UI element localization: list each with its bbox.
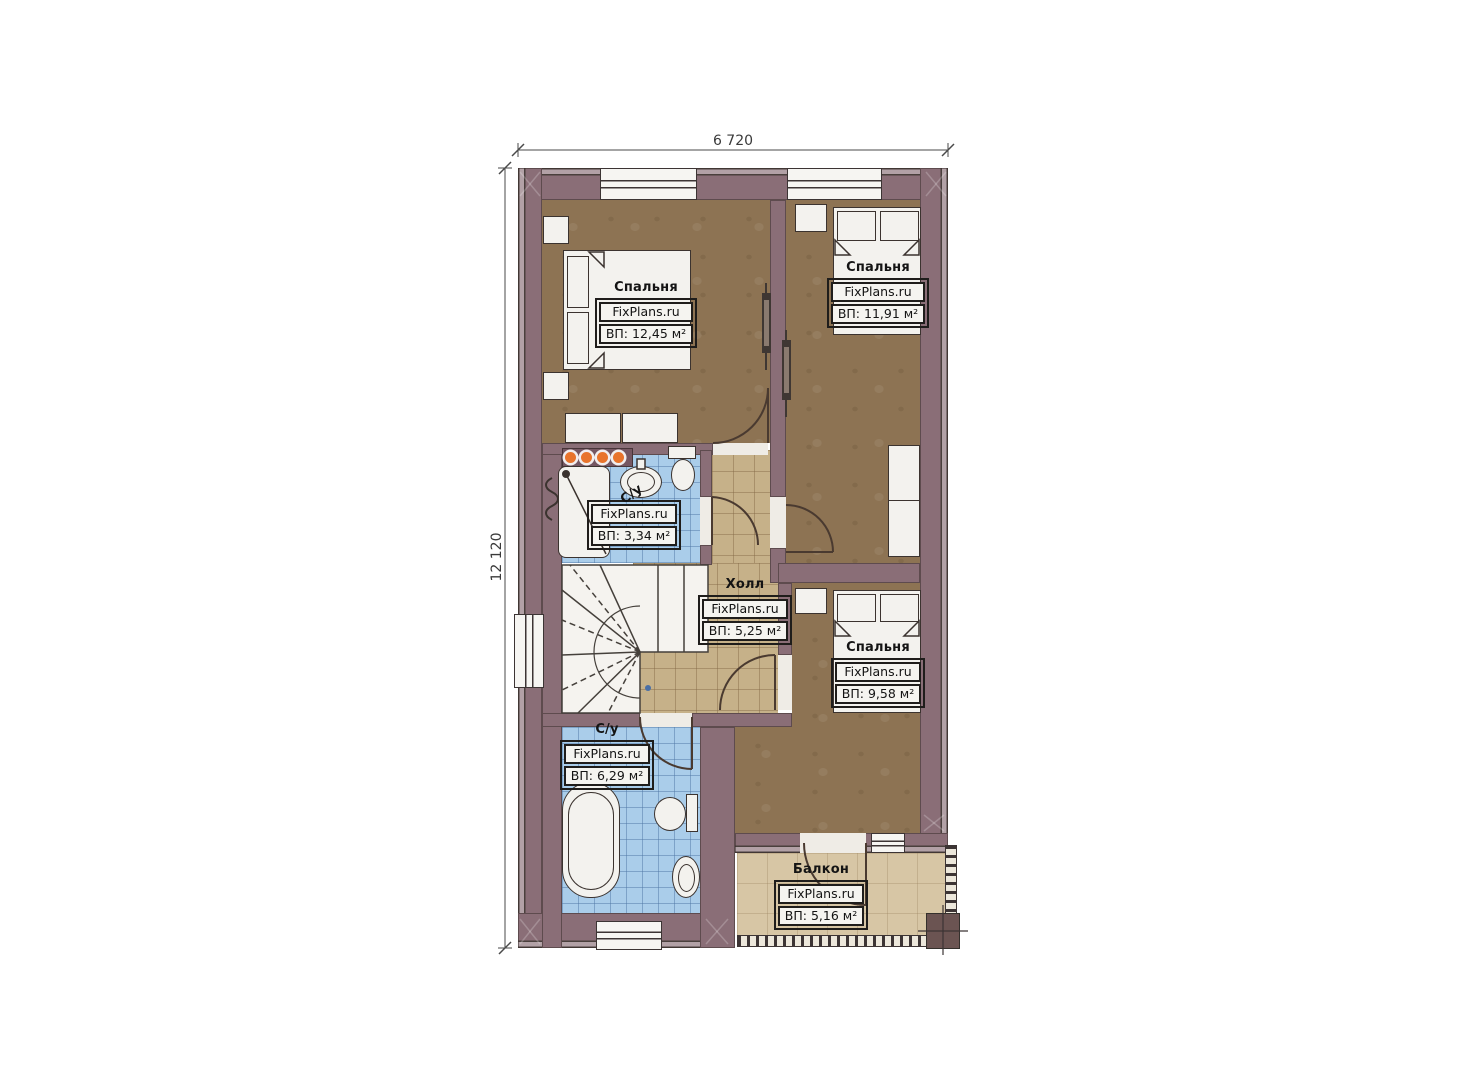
window-top-right <box>787 168 882 200</box>
room-label-bedroom-top-right: Спальня FixPlans.ru ВП: 11,91 м² <box>833 260 923 328</box>
wall-exterior-top <box>518 168 948 200</box>
room-label-bedroom-bottom-right: Спальня FixPlans.ru ВП: 9,58 м² <box>834 640 922 708</box>
toilet-bowl <box>654 797 686 831</box>
sink-basin <box>678 864 695 892</box>
window-left <box>514 614 544 688</box>
floor-plan-drawing: Спальня FixPlans.ru ВП: 12,45 м² Спальня… <box>0 0 1473 1080</box>
balcony-post <box>926 913 960 949</box>
area-label: ВП: 11,91 м² <box>831 304 925 324</box>
brand-label: FixPlans.ru <box>564 744 650 764</box>
label-box: FixPlans.ru ВП: 3,34 м² <box>587 500 681 550</box>
room-label-balcony: Балкон FixPlans.ru ВП: 5,16 м² <box>778 862 864 930</box>
label-box: FixPlans.ru ВП: 11,91 м² <box>827 278 929 328</box>
area-label: ВП: 12,45 м² <box>599 324 693 344</box>
spotlight <box>597 452 608 463</box>
wall-exterior-left <box>518 168 542 948</box>
doorway-bedroom2 <box>770 497 786 548</box>
label-box: FixPlans.ru ВП: 5,25 м² <box>698 595 792 645</box>
brand-label: FixPlans.ru <box>591 504 677 524</box>
pillow <box>567 256 589 308</box>
wardrobe <box>888 445 920 557</box>
brand-label: FixPlans.ru <box>778 884 864 904</box>
area-label: ВП: 5,16 м² <box>778 906 864 926</box>
room-name: Спальня <box>846 260 910 275</box>
room-label-hall: Холл FixPlans.ru ВП: 5,25 м² <box>703 577 787 645</box>
window-top-left <box>600 168 697 200</box>
wall-bathroom-small-right-b <box>700 545 712 565</box>
doorway-bathroom-small <box>700 497 712 545</box>
brand-label: FixPlans.ru <box>599 302 693 322</box>
wall-bedroom2-bottom <box>778 563 920 583</box>
room-label-bedroom-top-left: Спальня FixPlans.ru ВП: 12,45 м² <box>600 280 692 348</box>
pillow <box>880 211 919 241</box>
bedroom-bottom-right-floor-ext <box>735 727 792 833</box>
room-name: Холл <box>726 577 765 592</box>
area-label: ВП: 6,29 м² <box>564 766 650 786</box>
pillow <box>567 312 589 364</box>
wall-center-vertical <box>770 200 786 497</box>
window-bottom <box>596 921 662 950</box>
wall-exterior-right <box>920 168 948 853</box>
room-name: Балкон <box>793 862 849 877</box>
area-label: ВП: 5,25 м² <box>702 621 788 641</box>
wall-shaft-center <box>700 727 735 948</box>
room-name: С/у <box>595 722 618 737</box>
wall-hall-south-b <box>692 713 792 727</box>
nightstand <box>795 588 827 614</box>
label-box: FixPlans.ru ВП: 9,58 м² <box>831 658 925 708</box>
toilet-tank <box>686 794 698 832</box>
wardrobe <box>565 413 621 443</box>
area-label: ВП: 3,34 м² <box>591 526 677 546</box>
label-box: FixPlans.ru ВП: 12,45 м² <box>595 298 697 348</box>
toilet-tank <box>668 446 696 459</box>
doorway-balcony <box>800 833 866 853</box>
pillow <box>880 594 919 622</box>
toilet-bowl <box>671 459 695 491</box>
room-label-bathroom-small: FixPlans.ru ВП: 3,34 м² <box>590 500 678 550</box>
dimension-width: 6 720 <box>713 133 753 149</box>
hall-floor-upper <box>712 450 778 563</box>
pillow <box>837 211 876 241</box>
wardrobe-divider <box>889 500 919 501</box>
brand-label: FixPlans.ru <box>835 662 921 682</box>
spotlight <box>565 452 576 463</box>
window-bedroom3 <box>871 833 905 853</box>
brand-label: FixPlans.ru <box>831 282 925 302</box>
nightstand <box>543 372 569 400</box>
wall-bathroom-small-right-a <box>700 450 712 497</box>
brand-label: FixPlans.ru <box>702 599 788 619</box>
dimension-height: 12 120 <box>489 533 505 582</box>
spotlight <box>581 452 592 463</box>
room-name: Спальня <box>846 640 910 655</box>
floor-plan: Спальня FixPlans.ru ВП: 12,45 м² Спальня… <box>0 0 1473 1080</box>
nightstand <box>795 204 827 232</box>
pillow <box>837 594 876 622</box>
nightstand <box>543 216 569 244</box>
doorway-bedroom3 <box>778 655 792 710</box>
doorway-bedroom1 <box>713 443 768 455</box>
area-label: ВП: 9,58 м² <box>835 684 921 704</box>
balcony-railing-bottom <box>737 935 957 947</box>
room-name: Спальня <box>614 280 678 295</box>
bathtub-basin <box>568 792 614 890</box>
room-label-bathroom-big: С/у FixPlans.ru ВП: 6,29 м² <box>564 722 650 790</box>
spotlight <box>613 452 624 463</box>
label-box: FixPlans.ru ВП: 5,16 м² <box>774 880 868 930</box>
label-box: FixPlans.ru ВП: 6,29 м² <box>560 740 654 790</box>
wardrobe <box>622 413 678 443</box>
